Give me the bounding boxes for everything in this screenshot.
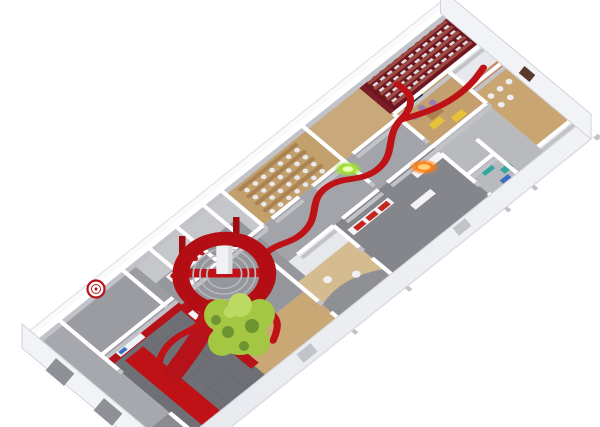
tree-shade-2 xyxy=(222,326,234,338)
floorplan-render xyxy=(0,0,600,427)
orange-glow-core xyxy=(418,164,430,169)
green-glow-core xyxy=(343,166,353,171)
render-canvas xyxy=(0,0,600,427)
emblem-center-dot xyxy=(95,288,98,291)
tree-shade-1 xyxy=(245,319,259,333)
round-emblem-sign xyxy=(88,281,105,298)
tree-shade-4 xyxy=(211,315,221,325)
tree-shade-3 xyxy=(239,341,249,351)
courtyard-tree xyxy=(204,293,275,356)
tree-highlight-2 xyxy=(224,306,236,318)
